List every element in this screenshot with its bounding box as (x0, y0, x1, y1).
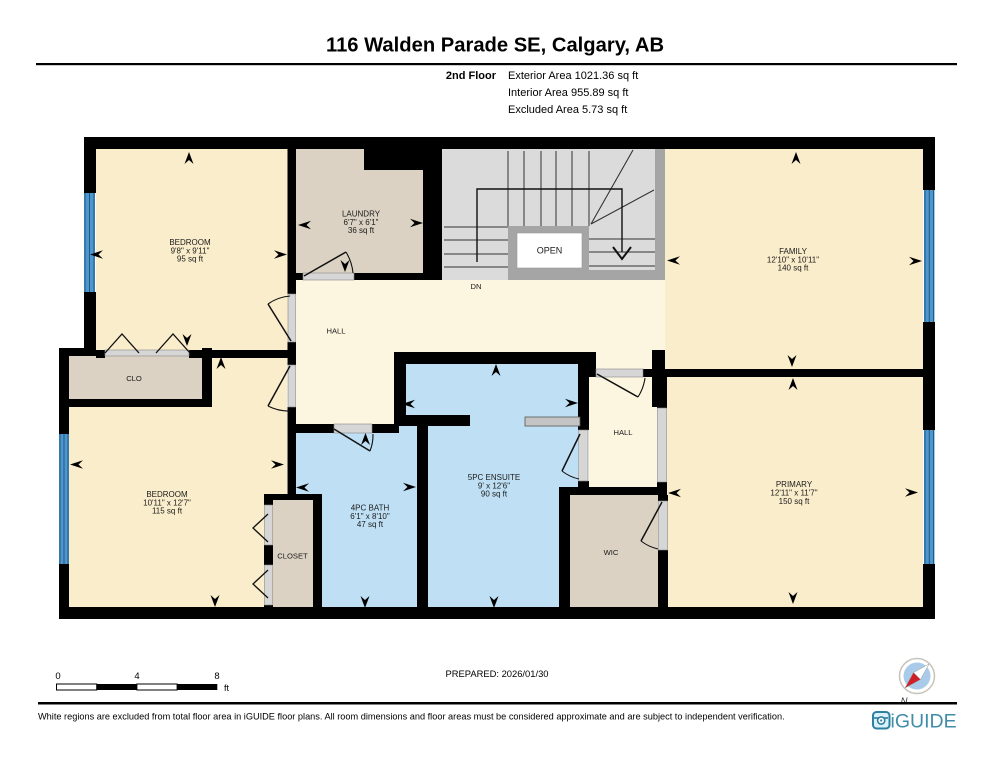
svg-text:95 sq ft: 95 sq ft (177, 255, 204, 264)
svg-text:Excluded Area 5.73 sq ft: Excluded Area 5.73 sq ft (508, 104, 627, 116)
svg-text:HALL: HALL (327, 327, 346, 336)
svg-text:DN: DN (471, 282, 482, 291)
svg-text:White regions are excluded fro: White regions are excluded from total fl… (38, 712, 785, 722)
svg-text:CLOSET: CLOSET (277, 552, 308, 561)
svg-text:OPEN: OPEN (537, 246, 563, 256)
svg-text:8: 8 (214, 671, 219, 682)
svg-text:150 sq ft: 150 sq ft (779, 497, 810, 506)
svg-text:47 sq ft: 47 sq ft (357, 520, 384, 529)
svg-text:140 sq ft: 140 sq ft (778, 264, 809, 273)
svg-text:90 sq ft: 90 sq ft (481, 490, 508, 499)
svg-text:ft: ft (224, 683, 230, 693)
svg-text:Interior Area 955.89 sq ft: Interior Area 955.89 sq ft (508, 87, 628, 99)
svg-text:HALL: HALL (614, 428, 633, 437)
svg-text:iGUIDE: iGUIDE (891, 711, 957, 733)
svg-text:WIC: WIC (604, 548, 619, 557)
svg-text:2nd Floor: 2nd Floor (446, 70, 497, 82)
svg-text:4: 4 (134, 671, 139, 682)
svg-text:0: 0 (55, 671, 60, 682)
svg-text:Exterior Area 1021.36 sq ft: Exterior Area 1021.36 sq ft (508, 70, 638, 82)
svg-text:PREPARED: 2026/01/30: PREPARED: 2026/01/30 (445, 668, 548, 679)
svg-text:N: N (901, 696, 908, 707)
svg-text:115 sq ft: 115 sq ft (152, 507, 183, 516)
svg-text:36 sq ft: 36 sq ft (348, 226, 375, 235)
svg-text:116 Walden Parade SE, Calgary,: 116 Walden Parade SE, Calgary, AB (326, 35, 664, 57)
svg-text:CLO: CLO (126, 374, 142, 383)
